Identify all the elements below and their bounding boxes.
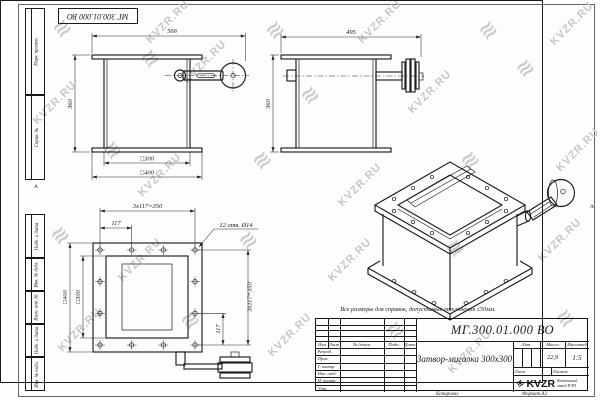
plan-pitch-right-dim: 117 [215,324,222,334]
plan-pitch-dim: 117 [111,220,121,227]
tb-scale-value: 1:5 [565,348,589,367]
tb-mass-value: 22,9 [540,348,565,367]
tb-sheet-label: Лист [513,367,551,375]
tb-line [531,348,532,367]
tb-line [340,319,341,392]
plan-holes-callout: 12 отв. Ø14 [219,222,253,229]
tb-col-izm: Изм [316,341,328,348]
tb-mass-label: Масса [540,341,565,348]
title-block: Изм Лист № докум. Подп. Дата Разраб. Про… [315,318,588,391]
isometric-view [368,162,575,320]
kvzr-logo-text: KVZR [526,378,555,390]
tb-line [404,319,405,392]
tb-line [316,336,416,337]
front-view: 566 360 □300 □400 [67,28,249,180]
tb-line [316,330,416,331]
tb-row-tkontr: Т. контр. [316,363,340,370]
kvzr-logo-icon: ≋ [515,377,527,390]
tb-lit-label: Лит. [513,341,540,348]
tb-row-utv: Утв. [316,385,340,392]
plan-pitch3-right-dim: 3x117=350 [247,281,254,312]
tb-row-nkontr: Н. контр. [316,377,340,384]
footer-copy-label: Копировал [436,392,458,397]
tb-line [316,325,416,326]
tb-company-name: Котельный завод РЭП [557,379,585,389]
tb-line [522,348,523,367]
reference-note: Все размеры для справок, допустимые откл… [318,306,518,313]
tb-row-nachotd: Нач. отд. [316,370,340,377]
drawing-sheet: ≋KVZR.RU≋KVZR.RU≋KVZR.RUKVZR.RU≋KVZR.RU≋… [0,0,600,400]
tb-row-razrab: Разраб. [316,348,340,355]
plan-outer-dim: □400 [62,289,69,303]
front-outer-dim: □400 [140,170,154,177]
tb-part-name: Затвор-мигалка 300х300 [416,341,513,377]
plan-inner-dim: □300 [75,289,82,303]
tb-col-data: Дата [404,341,416,348]
plan-pitch3-dim: 3x117=350 [132,203,163,210]
side-width-dim: 495 [346,29,357,36]
side-height-dim: 360 [265,98,272,110]
tb-col-dokum: № докум. [340,341,384,348]
tb-company-cell: ≋ KVZR Котельный завод РЭП [513,375,589,392]
side-view: 495 360 [265,29,424,152]
tb-sheets-label: Листов [551,367,589,375]
tb-col-list: Лист [328,341,340,348]
tb-scale-label: Масштаб [565,341,589,348]
tb-document-number: МГ.300.01.000 ВО [416,319,589,341]
plan-view: 3x117=350 117 12 отв. Ø14 □400 □300 3x11… [62,203,258,378]
tb-col-podp: Подп. [384,341,404,348]
front-height-dim: 360 [67,98,74,110]
tb-line [384,319,385,392]
front-width-dim: 566 [167,28,178,35]
tb-row-prov: Пров. [316,355,340,362]
front-inner-dim: □300 [140,156,154,163]
footer-format-label: Формат А3 [522,392,547,397]
